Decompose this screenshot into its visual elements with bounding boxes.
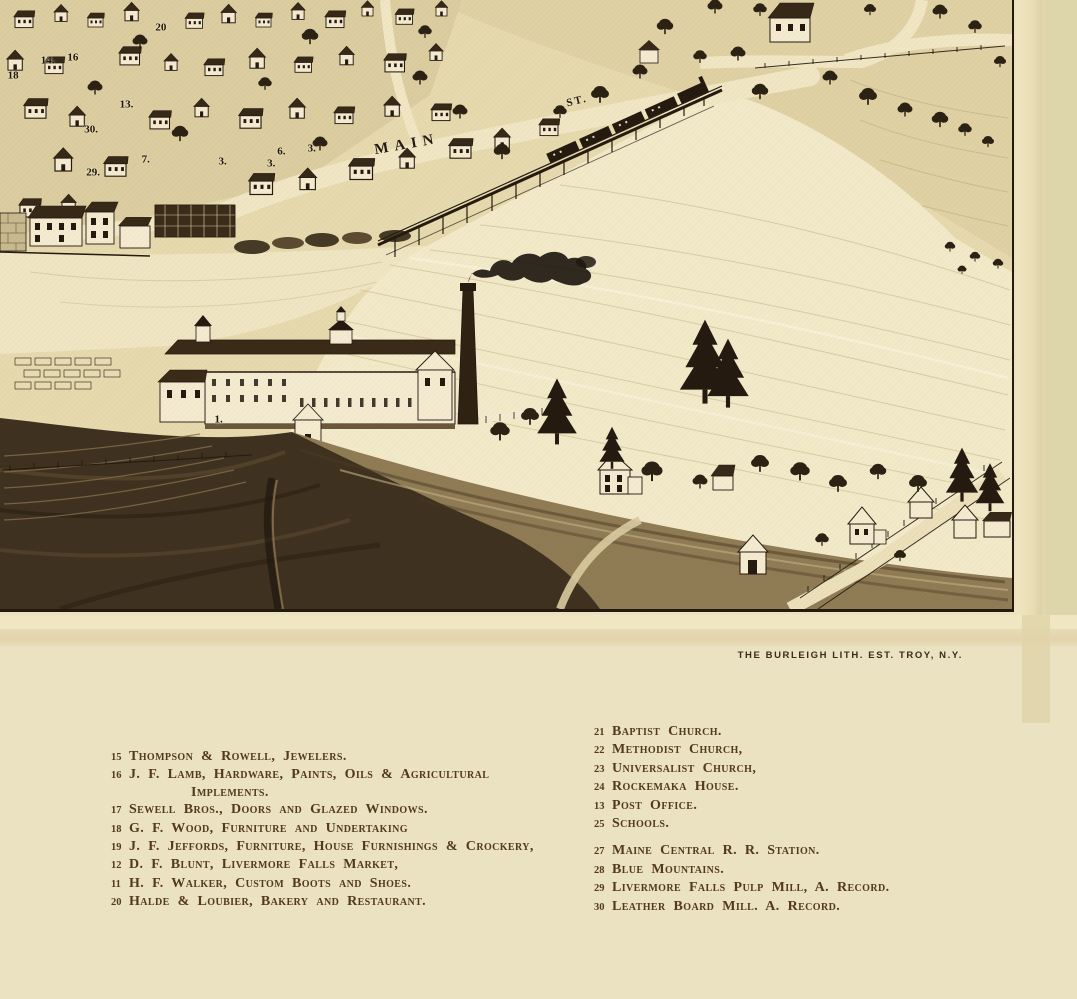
legend-label: Sewell Bros., Doors and Glazed Windows. — [129, 801, 428, 818]
legend-label: J. F. Jeffords, Furniture, House Furnish… — [129, 838, 534, 855]
legend-entry: 20 Halde & Loubier, Bakery and Restauran… — [103, 893, 593, 911]
legend-number: 25 — [586, 816, 612, 833]
building-marker: 14. — [41, 55, 55, 66]
legend-label: Leather Board Mill. A. Record. — [612, 898, 840, 915]
legend-number: 22 — [586, 742, 612, 759]
legend-entry: 12 D. F. Blunt, Livermore Falls Market, — [103, 856, 593, 874]
legend-label: Schools. — [612, 815, 669, 832]
legend-entry: 23 Universalist Church, — [586, 760, 1056, 778]
building-marker: 3. — [308, 144, 316, 155]
legend-label-line1: Rockemaka House. — [612, 779, 739, 794]
legend-label-line1: Halde & Loubier, Bakery and Restaurant. — [129, 894, 426, 909]
legend-entry: 27 Maine Central R. R. Station. — [586, 842, 1056, 860]
legend-number: 15 — [103, 749, 129, 766]
legend-number: 27 — [586, 843, 612, 860]
building-marker: 7. — [142, 155, 150, 166]
legend-number: 13 — [586, 798, 612, 815]
legend-label: Blue Mountains. — [612, 861, 724, 878]
paper-margin-right — [1016, 0, 1045, 615]
legend-number: 16 — [103, 767, 129, 784]
lithographer-imprint: THE BURLEIGH LITH. EST. TROY, N.Y. — [738, 650, 963, 661]
legend-entry: 15 Thompson & Rowell, Jewelers. — [103, 748, 593, 766]
building-marker: 16 — [67, 52, 78, 63]
fold-crease-vertical — [1022, 615, 1050, 723]
legend-right-column: 21 Baptist Church. 22 Methodist Church, … — [586, 723, 1056, 916]
paper-margin-bottom — [0, 615, 1077, 629]
legend-entry: 30 Leather Board Mill. A. Record. — [586, 898, 1056, 916]
building-marker: 3. — [267, 159, 275, 170]
legend-label-line1: J. F. Jeffords, Furniture, House Furnish… — [129, 839, 534, 854]
building-marker: 3. — [219, 156, 227, 167]
legend-entry: 28 Blue Mountains. — [586, 861, 1056, 879]
legend-number: 12 — [103, 857, 129, 874]
legend-label: Thompson & Rowell, Jewelers. — [129, 748, 347, 765]
legend-label-line1: G. F. Wood, Furniture and Undertaking — [129, 821, 408, 836]
building-marker: 13. — [120, 100, 134, 111]
legend-label-line1: Schools. — [612, 816, 669, 831]
birdseye-illustration — [0, 0, 1012, 609]
legend-label: Halde & Loubier, Bakery and Restaurant. — [129, 893, 426, 910]
legend-label-line2: Implements. — [191, 784, 489, 801]
legend-number: 11 — [103, 876, 129, 893]
building-marker: 1. — [214, 415, 222, 426]
legend-number: 17 — [103, 802, 129, 819]
legend-number: 30 — [586, 899, 612, 916]
legend-label: Rockemaka House. — [612, 778, 739, 795]
legend-entry: 18 G. F. Wood, Furniture and Undertaking — [103, 820, 593, 838]
legend-number: 20 — [103, 894, 129, 911]
legend-label-line1: Livermore Falls Pulp Mill, A. Record. — [612, 880, 889, 895]
legend-label: H. F. Walker, Custom Boots and Shoes. — [129, 875, 411, 892]
legend-number: 24 — [586, 779, 612, 796]
building-marker: 18 — [8, 70, 19, 81]
birdseye-map: MAIN ST. 20 14. 16 18 13. 30. 29. 7. 3. — [0, 0, 1014, 612]
legend-label: D. F. Blunt, Livermore Falls Market, — [129, 856, 398, 873]
legend-number: 19 — [103, 839, 129, 856]
legend-entry: 25 Schools. — [586, 815, 1056, 833]
legend-label-line1: Thompson & Rowell, Jewelers. — [129, 749, 347, 764]
legend-number: 23 — [586, 761, 612, 778]
legend-label-line1: Blue Mountains. — [612, 862, 724, 877]
building-marker: 6. — [277, 147, 285, 158]
legend-label-line1: Sewell Bros., Doors and Glazed Windows. — [129, 802, 428, 817]
litho-texture — [0, 0, 1012, 609]
legend-label-line1: Post Office. — [612, 798, 697, 813]
legend-number: 29 — [586, 880, 612, 897]
legend-label-line1: J. F. Lamb, Hardware, Paints, Oils & Agr… — [129, 767, 489, 782]
legend-entry: 17 Sewell Bros., Doors and Glazed Window… — [103, 801, 593, 819]
legend-entry: 16 J. F. Lamb, Hardware, Paints, Oils & … — [103, 766, 593, 801]
legend-label-line1: Methodist Church, — [612, 742, 743, 757]
building-marker: 30. — [84, 125, 98, 136]
legend-label-line1: Universalist Church, — [612, 761, 756, 776]
legend-label-line1: H. F. Walker, Custom Boots and Shoes. — [129, 876, 411, 891]
legend-entry: 11 H. F. Walker, Custom Boots and Shoes. — [103, 875, 593, 893]
lithograph-page: MAIN ST. 20 14. 16 18 13. 30. 29. 7. 3. — [0, 0, 1077, 999]
legend-label: Post Office. — [612, 797, 697, 814]
legend-label-line1: Maine Central R. R. Station. — [612, 843, 820, 858]
legend-label-line1: Baptist Church. — [612, 724, 722, 739]
legend-number: 28 — [586, 862, 612, 879]
legend-entry: 13 Post Office. — [586, 797, 1056, 815]
paper-edge-right — [1045, 0, 1077, 615]
legend-label-line1: Leather Board Mill. A. Record. — [612, 899, 840, 914]
fold-crease-horizontal — [0, 629, 1077, 646]
legend-label: Livermore Falls Pulp Mill, A. Record. — [612, 879, 889, 896]
legend-label: G. F. Wood, Furniture and Undertaking — [129, 820, 408, 837]
legend-entry: 24 Rockemaka House. — [586, 778, 1056, 796]
legend-entry: 29 Livermore Falls Pulp Mill, A. Record. — [586, 879, 1056, 897]
legend-label: J. F. Lamb, Hardware, Paints, Oils & Agr… — [129, 766, 489, 801]
legend-label: Baptist Church. — [612, 723, 722, 740]
legend-entry: 19 J. F. Jeffords, Furniture, House Furn… — [103, 838, 593, 856]
legend-label: Methodist Church, — [612, 741, 743, 758]
legend-label: Maine Central R. R. Station. — [612, 842, 820, 859]
legend-label: Universalist Church, — [612, 760, 756, 777]
legend-entry: 21 Baptist Church. — [586, 723, 1056, 741]
legend-number: 21 — [586, 724, 612, 741]
legend-left-column: 15 Thompson & Rowell, Jewelers. 16 J. F.… — [103, 748, 593, 912]
legend-entry: 22 Methodist Church, — [586, 741, 1056, 759]
legend-label-line1: D. F. Blunt, Livermore Falls Market, — [129, 857, 398, 872]
building-marker: 20 — [155, 23, 166, 34]
legend-number: 18 — [103, 821, 129, 838]
building-marker: 29. — [86, 167, 100, 178]
